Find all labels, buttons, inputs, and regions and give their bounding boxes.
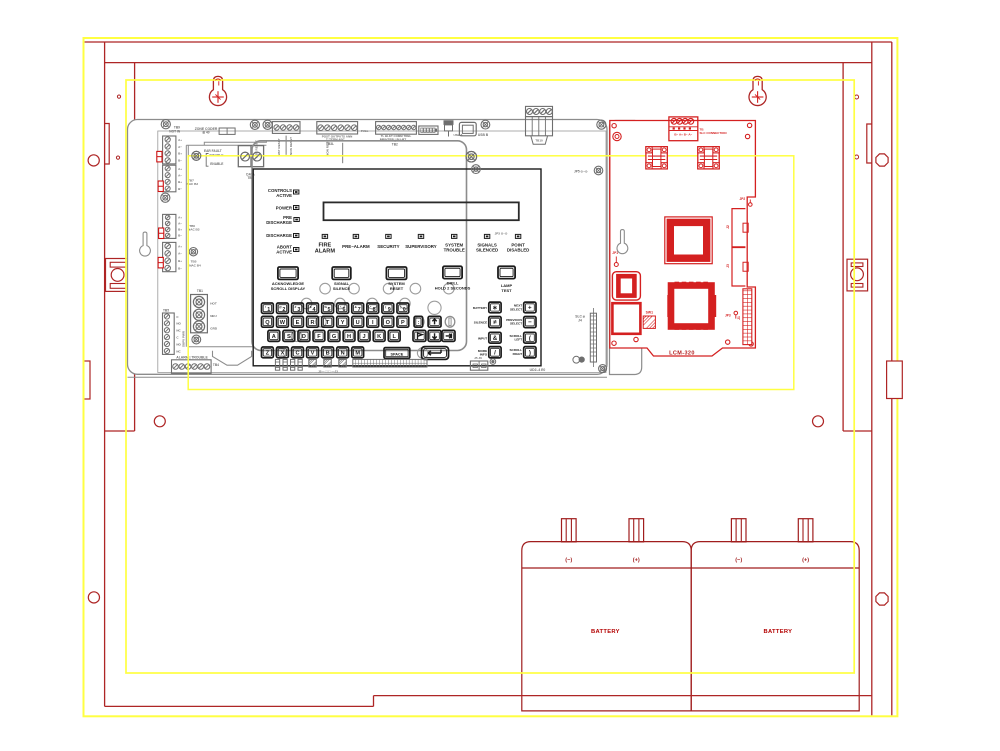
svg-text:3: 3 [297, 307, 300, 313]
svg-text:SUPV PWR: SUPV PWR [182, 330, 186, 347]
svg-text:DISCHARGE: DISCHARGE [266, 220, 292, 225]
svg-text:FIRE: FIRE [319, 243, 332, 249]
svg-text:SILENCE: SILENCE [474, 321, 487, 325]
svg-text:SW1: SW1 [646, 311, 653, 315]
svg-text:J1: J1 [737, 316, 741, 320]
svg-text:7: 7 [358, 307, 361, 313]
svg-text:TEST: TEST [501, 288, 512, 293]
svg-text:(−): (−) [735, 558, 742, 564]
svg-text:ACTIVE: ACTIVE [276, 250, 292, 255]
svg-text:V: V [311, 351, 315, 357]
svg-text:EAR FAULT: EAR FAULT [204, 149, 222, 153]
svg-text:(: ( [385, 305, 386, 309]
svg-text::: : [418, 320, 420, 326]
svg-text:SPACE: SPACE [390, 352, 403, 356]
svg-text:4: 4 [312, 307, 315, 313]
svg-text:HOT: HOT [210, 301, 217, 305]
svg-text:NOT IN: NOT IN [169, 130, 180, 134]
svg-text:A−: A− [178, 252, 182, 256]
svg-text:M: M [355, 351, 360, 357]
svg-text:NO: NO [176, 322, 181, 326]
svg-text:/: / [494, 349, 496, 356]
svg-text:∗: ∗ [492, 305, 497, 312]
svg-text:J2: J2 [726, 225, 730, 229]
svg-text:H: H [347, 334, 351, 340]
svg-text:P: P [401, 320, 405, 326]
svg-text:BATTERY: BATTERY [763, 629, 792, 635]
svg-text:Q: Q [265, 320, 270, 326]
svg-text:R: R [311, 320, 315, 326]
svg-text:J: J [363, 334, 366, 340]
svg-text:G: G [332, 334, 336, 340]
svg-text:J3: J3 [726, 264, 730, 268]
svg-text:L: L [392, 334, 396, 340]
svg-text:JP3 ⊙–⊙: JP3 ⊙–⊙ [495, 231, 508, 235]
svg-text:DISCHARGE: DISCHARGE [266, 233, 292, 238]
svg-text:J4: J4 [578, 319, 582, 323]
svg-text:UD2–4 E0: UD2–4 E0 [530, 368, 546, 372]
svg-text:NEU: NEU [210, 314, 217, 318]
svg-text:INPUT: INPUT [478, 336, 487, 340]
svg-text:T: T [326, 320, 330, 326]
svg-text:A+: A+ [178, 138, 182, 142]
svg-text:K: K [377, 334, 381, 340]
svg-text:(+): (+) [633, 558, 640, 564]
svg-text:PRE−ALARM: PRE−ALARM [342, 244, 370, 249]
svg-text:ENABLE: ENABLE [210, 162, 223, 166]
svg-text:B−: B− [178, 159, 182, 163]
svg-text:⊞ 40: ⊞ 40 [202, 130, 209, 134]
svg-text:O: O [386, 320, 391, 326]
svg-text:−: − [528, 319, 532, 326]
svg-text:JP5 ⊙–⊙: JP5 ⊙–⊙ [574, 170, 588, 174]
svg-text:(+): (+) [802, 558, 809, 564]
svg-text:POWER: POWER [276, 205, 293, 210]
svg-text:TB5: TB5 [163, 308, 169, 312]
svg-text:ALARM: ALARM [315, 249, 336, 255]
svg-text:C: C [295, 351, 299, 357]
svg-text:B+: B+ [178, 259, 182, 263]
svg-text:FULL: FULL [361, 129, 369, 133]
svg-text:F: F [317, 334, 321, 340]
svg-text:): ) [400, 305, 401, 309]
svg-text:B: B [326, 351, 330, 357]
svg-text:A+: A+ [178, 167, 182, 171]
svg-text:SILENCED: SILENCED [476, 248, 498, 253]
svg-text:X: X [281, 351, 285, 357]
svg-text:JP2: JP2 [740, 197, 746, 201]
svg-text:(−): (−) [565, 558, 572, 564]
svg-text:E: E [296, 320, 300, 326]
svg-text:SCROLL DISPLAY: SCROLL DISPLAY [271, 286, 306, 291]
svg-text:0: 0 [403, 307, 406, 313]
svg-text:8: 8 [373, 307, 376, 313]
svg-text:A+: A+ [178, 216, 182, 220]
svg-text:RIGHT: RIGHT [513, 352, 523, 356]
svg-text:GRD: GRD [210, 326, 218, 330]
svg-text:USB B: USB B [478, 133, 489, 137]
svg-text:SECURITY: SECURITY [377, 244, 399, 249]
svg-text:TROUBLE: TROUBLE [444, 248, 465, 253]
svg-text:SLC CONNECTION: SLC CONNECTION [700, 131, 727, 135]
svg-text:JP1: JP1 [612, 251, 618, 255]
svg-text:+: + [528, 305, 532, 312]
svg-text:B− A+ B− A−: B− A+ B− A− [674, 132, 692, 136]
svg-text:B+: B+ [178, 180, 182, 184]
svg-text:B−: B− [178, 266, 182, 270]
svg-text:D: D [302, 334, 306, 340]
svg-text:5: 5 [328, 307, 331, 313]
svg-text:LCM-320: LCM-320 [669, 350, 695, 356]
svg-text:NAC B3: NAC B3 [188, 228, 200, 232]
svg-text:B+: B+ [178, 152, 182, 156]
svg-text:2: 2 [282, 307, 285, 313]
svg-text:J2— □□□ —J3: J2— □□□ —J3 [318, 370, 338, 374]
svg-text:SUPERVISORY: SUPERVISORY [405, 244, 437, 249]
svg-text:SILENCE: SILENCE [333, 286, 351, 291]
svg-text:TB1: TB1 [197, 289, 203, 293]
svg-text:Y: Y [341, 320, 345, 326]
svg-text:W: W [280, 320, 286, 326]
svg-text:TB4: TB4 [213, 363, 219, 367]
svg-text:B+: B+ [178, 228, 182, 232]
svg-text:ACTIVE: ACTIVE [276, 193, 292, 198]
svg-text:A−: A− [178, 222, 182, 226]
svg-text:A−: A− [178, 173, 182, 177]
svg-text:B−: B− [178, 187, 182, 191]
svg-text:TB2: TB2 [392, 142, 398, 146]
svg-text:B−: B− [178, 234, 182, 238]
svg-text:BATTERY: BATTERY [591, 629, 620, 635]
svg-text:A+: A+ [178, 244, 182, 248]
svg-text:&: & [493, 335, 498, 342]
svg-text:!: ! [265, 305, 266, 309]
svg-text:A−: A− [178, 145, 182, 149]
svg-text:≠: ≠ [493, 319, 497, 326]
svg-text:DISABLED: DISABLED [507, 248, 529, 253]
svg-text:Z: Z [266, 351, 270, 357]
svg-text:^: ^ [340, 305, 342, 309]
svg-text:SELECT: SELECT [510, 307, 522, 311]
svg-text:TB3L: TB3L [326, 142, 334, 146]
svg-text:SELECT: SELECT [510, 322, 522, 326]
svg-text:6: 6 [343, 307, 346, 313]
svg-text:RESET: RESET [390, 286, 404, 291]
svg-text:J5 J6: J5 J6 [474, 356, 482, 360]
svg-text:): ) [529, 349, 531, 356]
svg-text:ALARM | TROUBLE: ALARM | TROUBLE [176, 356, 208, 360]
svg-text:1: 1 [267, 307, 270, 313]
svg-text:NON RESET: NON RESET [289, 137, 293, 155]
svg-text:JP3: JP3 [725, 314, 731, 318]
svg-text:BATTERY: BATTERY [473, 306, 488, 310]
svg-text:N: N [341, 351, 345, 357]
svg-text:9: 9 [388, 307, 391, 313]
svg-text:HOLD 2 SECONDS: HOLD 2 SECONDS [435, 285, 471, 290]
svg-text:NAC B4: NAC B4 [189, 264, 201, 268]
svg-text:A: A [272, 334, 276, 340]
svg-text:S: S [287, 334, 291, 340]
svg-text:TB10: TB10 [535, 139, 543, 143]
svg-text:U: U [356, 320, 360, 326]
svg-text:LEFT: LEFT [514, 338, 522, 342]
